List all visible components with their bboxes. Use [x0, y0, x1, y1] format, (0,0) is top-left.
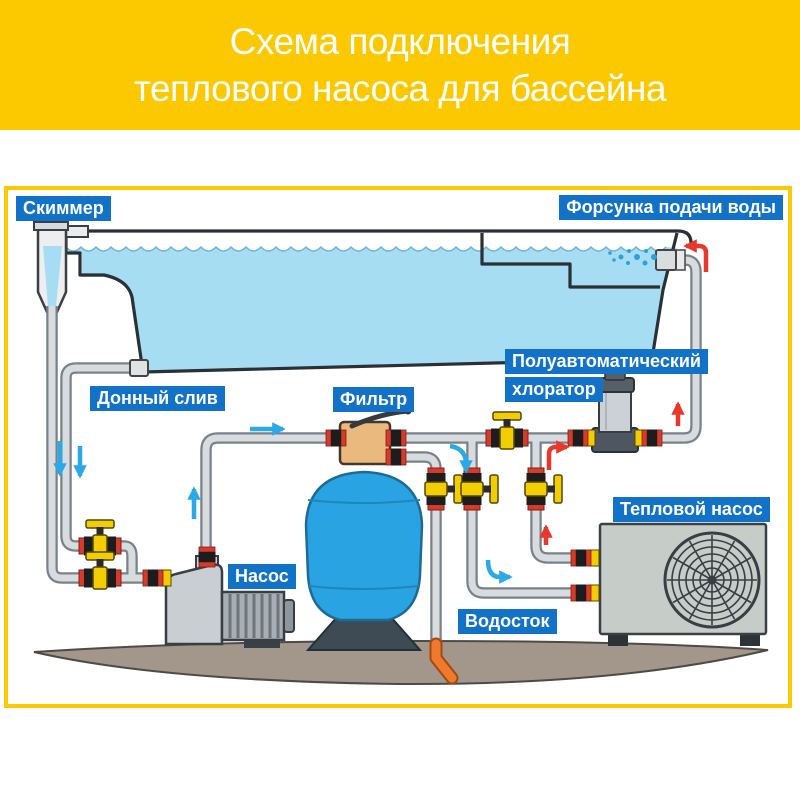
union-pump-outlet [199, 547, 216, 567]
union-heatpump-out [571, 550, 591, 567]
label-bottom-drain: Донный слив [90, 386, 225, 411]
label-chlorinator-line1: Полуавтоматический [505, 349, 708, 374]
valve-waste [425, 468, 462, 510]
motor-end-cap [284, 600, 294, 632]
valve-heatpump-inlet [461, 468, 498, 510]
screenshot-root: Схема подключения теплового насоса для б… [0, 0, 800, 801]
union-filter-left [326, 430, 346, 447]
arrow-heatpump-in [488, 560, 510, 577]
heatpump-foot-right [740, 634, 760, 646]
pump-housing [166, 565, 222, 644]
pool-rim-hook [678, 231, 691, 243]
union-heatpump-in [571, 585, 591, 602]
nozzle-union [676, 250, 685, 270]
union-filter-waste [386, 449, 406, 466]
label-heat-pump: Тепловой насос [613, 497, 770, 522]
bottom-drain-fitting [130, 360, 148, 376]
label-supply-nozzle: Форсунка подачи воды [559, 195, 783, 220]
valve-skimmer [79, 552, 121, 589]
arrow-hot-to-main [549, 447, 567, 470]
arrow-to-heatpump-down [450, 446, 466, 471]
skimmer-lid [34, 222, 68, 230]
heat-pump [600, 524, 766, 646]
label-chlorinator: Полуавтоматический хлоратор [505, 349, 708, 402]
label-drain: Водосток [458, 609, 557, 634]
union-chlorinator-left [568, 430, 588, 447]
label-chlorinator-line2: хлоратор [505, 377, 603, 402]
heatpump-foot-left [608, 634, 628, 646]
fan-grille [665, 533, 759, 627]
multiport-valve [340, 422, 390, 464]
valve-bypass [486, 412, 528, 449]
union-pump-inlet [143, 570, 163, 587]
label-skimmer: Скиммер [16, 196, 111, 221]
union-filter-right [386, 430, 406, 447]
motor-ribs [230, 594, 278, 638]
supply-nozzle-fitting [656, 250, 676, 270]
filter-tank [306, 472, 422, 620]
valve-heatpump-outlet [525, 468, 562, 510]
label-pump: Насос [228, 564, 296, 589]
label-filter: Фильтр [333, 387, 414, 412]
union-chlorinator-right [642, 430, 662, 447]
